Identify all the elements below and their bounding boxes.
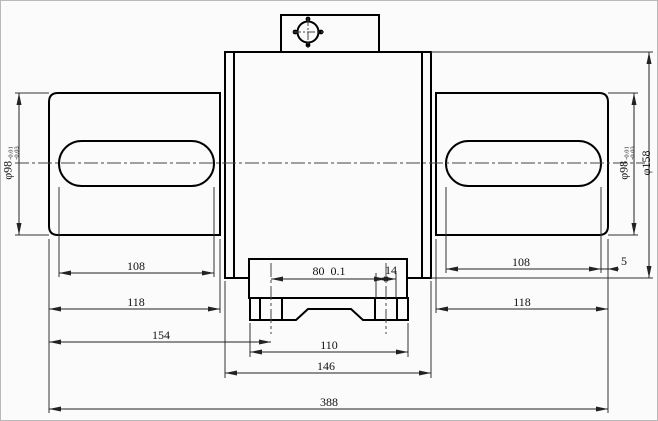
dim-left-flat-length: 108: [127, 260, 145, 272]
right-shaft: [436, 93, 608, 235]
tolerance-stack: -0.01-0.03: [9, 146, 21, 160]
dim-right-shaft-diameter: φ98-0.01-0.03: [618, 146, 637, 179]
dim-tab-width: 14: [385, 264, 397, 276]
dim-right-end-offset: 5: [621, 255, 627, 267]
dim-value: φ98: [617, 161, 631, 180]
dim-hole-spacing: 80 0.1: [313, 265, 346, 277]
arrowhead-end-offset: [608, 267, 618, 272]
dim-left-shaft-diameter: φ98-0.01-0.03: [2, 146, 21, 179]
dim-right-shaft-length: 118: [513, 296, 531, 308]
drawing-geometry: [1, 1, 658, 421]
dim-base-width: 110: [320, 339, 338, 351]
dim-value: φ98: [1, 161, 15, 180]
left-shaft: [49, 93, 220, 235]
dim-body-diameter: φ158: [640, 151, 652, 176]
technical-drawing-torque-sensor: φ98-0.01-0.03 φ98-0.01-0.03 φ158 108 118…: [0, 0, 658, 421]
dim-flange-width: 146: [317, 360, 335, 372]
bracket-foot: [250, 298, 408, 320]
dim-overall-length: 388: [320, 396, 338, 408]
dim-left-shaft-length: 118: [127, 296, 145, 308]
tol-lower: -0.03: [15, 146, 21, 160]
sensor-body: [225, 52, 431, 278]
tolerance-stack: -0.01-0.03: [625, 146, 637, 160]
dim-left-hole-offset: 154: [152, 329, 170, 341]
dimension-lines: [19, 52, 649, 409]
dim-right-flat-length: 108: [512, 256, 530, 268]
tol-lower: -0.03: [631, 146, 637, 160]
